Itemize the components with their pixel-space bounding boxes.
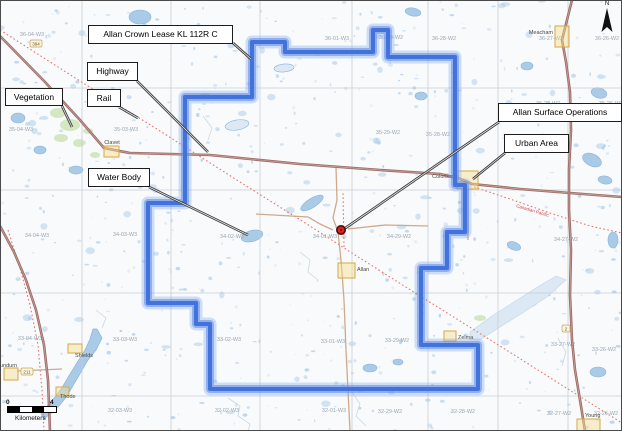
pond-speckle (405, 230, 409, 233)
pond-speckle (387, 253, 392, 256)
pond-speckle (378, 16, 383, 19)
pond-speckle (280, 143, 284, 146)
pond-speckle (520, 336, 525, 339)
pond-speckle (251, 150, 254, 153)
pond-speckle (379, 371, 383, 374)
pond-speckle (60, 352, 62, 355)
soil-speckle (292, 30, 294, 32)
pond-speckle (393, 205, 396, 206)
pond-speckle (205, 115, 210, 117)
pond-speckle (557, 332, 558, 333)
pond-speckle (129, 156, 132, 159)
pond-speckle (377, 67, 383, 73)
pond-speckle (167, 251, 170, 255)
township-grid-label: 32-03-W3 (108, 408, 132, 414)
soil-speckle (546, 177, 548, 179)
soil-speckle (576, 36, 579, 39)
highway-shield-number: 211 (23, 370, 31, 375)
pond-speckle (332, 61, 337, 65)
pond-speckle (255, 170, 258, 172)
township-grid-label: 34-27-W2 (554, 237, 578, 243)
soil-speckle (355, 425, 356, 426)
pond-speckle (567, 403, 571, 405)
township-grid-label: 32-28-W2 (451, 409, 475, 415)
pond-speckle (476, 99, 479, 101)
pond-speckle (442, 8, 445, 11)
pond-speckle (56, 376, 60, 379)
pond-speckle (249, 145, 252, 147)
urban-area-polygon (338, 263, 355, 278)
urban-area-polygon (4, 368, 18, 380)
pond-speckle (128, 383, 132, 386)
soil-speckle (5, 317, 8, 320)
soil-speckle (131, 202, 133, 204)
pond-speckle (274, 21, 277, 23)
lake (34, 146, 46, 154)
pond-speckle (106, 311, 110, 312)
pond-speckle (14, 61, 19, 64)
pond-speckle (610, 421, 615, 424)
pond-speckle (230, 322, 232, 324)
pond-speckle (537, 410, 541, 412)
pond-speckle (298, 231, 302, 232)
pond-speckle (151, 111, 154, 113)
pond-speckle (274, 407, 277, 408)
north-arrow-icon (599, 7, 615, 33)
soil-speckle (22, 21, 24, 23)
soil-speckle (314, 80, 317, 83)
pond-speckle (52, 195, 54, 197)
soil-speckle (306, 409, 307, 410)
soil-speckle (1, 201, 4, 204)
soil-speckle (62, 299, 64, 301)
pond-speckle (253, 341, 257, 342)
pond-speckle (455, 4, 459, 8)
soil-speckle (240, 378, 242, 380)
pond-speckle (25, 272, 29, 275)
pond-speckle (473, 58, 475, 60)
pond-speckle (305, 368, 310, 371)
soil-speckle (295, 354, 296, 355)
soil-speckle (372, 192, 375, 195)
soil-speckle (472, 107, 475, 110)
soil-speckle (370, 138, 373, 141)
soil-speckle (199, 288, 201, 290)
pond-speckle (486, 241, 488, 243)
pond-speckle (609, 204, 611, 207)
pond-speckle (280, 81, 283, 83)
pond-speckle (40, 223, 47, 229)
pond-speckle (378, 172, 386, 176)
pond-speckle (544, 352, 545, 353)
pond-speckle (162, 349, 166, 351)
pond-speckle (141, 374, 146, 376)
pond-speckle (311, 350, 315, 352)
town-label: Allan (357, 267, 369, 273)
callout-water-body: Water Body (88, 168, 150, 187)
pond-speckle (559, 225, 563, 228)
pond-speckle (400, 74, 403, 75)
soil-speckle (611, 330, 613, 332)
pond-speckle (106, 14, 111, 15)
vegetation-patch (474, 315, 486, 321)
pond-speckle (579, 97, 581, 98)
pond-speckle (179, 289, 183, 291)
pond-speckle (317, 280, 319, 282)
pond-speckle (8, 344, 12, 347)
pond-speckle (286, 207, 295, 214)
pond-speckle (323, 204, 331, 207)
pond-speckle (545, 206, 549, 208)
soil-speckle (310, 295, 312, 297)
pond-speckle (393, 318, 396, 320)
scale-bar: 0 4 Kilometers (5, 399, 75, 422)
pond-speckle (12, 169, 14, 171)
pond-speckle (32, 390, 36, 392)
soil-speckle (292, 106, 295, 109)
pond-speckle (171, 287, 174, 289)
soil-speckle (89, 237, 92, 240)
township-grid-label: 35-04-W3 (9, 127, 33, 133)
pond-speckle (40, 116, 49, 120)
pond-speckle (225, 83, 227, 86)
pond-speckle (45, 35, 47, 39)
pond-speckle (487, 28, 492, 30)
pond-speckle (608, 145, 611, 147)
pond-speckle (235, 362, 239, 364)
soil-speckle (535, 156, 537, 158)
pond-speckle (368, 334, 371, 337)
pond-speckle (275, 241, 279, 243)
soil-speckle (72, 25, 73, 26)
pond-speckle (180, 251, 182, 253)
pond-speckle (520, 194, 525, 197)
pond-speckle (321, 401, 330, 407)
soil-speckle (391, 286, 394, 289)
town-label: Young (585, 413, 600, 419)
pond-speckle (332, 18, 337, 19)
pond-speckle (276, 74, 280, 78)
pond-speckle (490, 352, 492, 354)
pond-speckle (104, 425, 107, 427)
pond-speckle (189, 220, 192, 222)
pond-speckle (133, 266, 135, 269)
pond-speckle (571, 74, 576, 78)
pond-speckle (198, 108, 201, 110)
pond-speckle (177, 211, 180, 212)
pond-speckle (473, 208, 480, 213)
pond-speckle (107, 351, 111, 355)
pond-speckle (301, 334, 303, 336)
soil-speckle (473, 282, 476, 285)
pond-speckle (27, 147, 32, 150)
pond-speckle (398, 80, 400, 82)
soil-speckle (267, 374, 270, 377)
soil-speckle (462, 23, 463, 24)
soil-speckle (282, 77, 285, 80)
pond-speckle (68, 424, 73, 427)
pond-speckle (85, 264, 90, 266)
pond-speckle (107, 162, 110, 164)
pond-speckle (230, 197, 232, 200)
pond-speckle (234, 423, 236, 425)
soil-speckle (514, 360, 517, 363)
soil-speckle (384, 347, 386, 349)
north-arrow: N (597, 1, 617, 35)
pond-speckle (322, 257, 327, 260)
pond-speckle (123, 250, 125, 252)
pond-speckle (599, 55, 601, 57)
pond-speckle (455, 263, 459, 266)
pond-speckle (297, 419, 301, 420)
pond-speckle (370, 229, 375, 233)
pond-speckle (337, 315, 340, 318)
soil-speckle (434, 95, 436, 97)
soil-speckle (485, 295, 488, 298)
pond-speckle (588, 307, 590, 309)
pond-speckle (431, 370, 436, 374)
pond-speckle (616, 345, 621, 348)
township-grid-label: 32-02-W3 (215, 408, 239, 414)
pond-speckle (484, 375, 488, 378)
pond-speckle (351, 372, 354, 374)
soil-speckle (291, 324, 292, 325)
soil-speckle (127, 270, 130, 273)
pond-speckle (367, 151, 370, 154)
pond-speckle (385, 278, 389, 282)
lake (129, 10, 151, 24)
soil-speckle (280, 248, 281, 249)
pond-speckle (172, 229, 174, 231)
pond-speckle (106, 343, 109, 346)
pond-speckle (161, 345, 171, 349)
pond-speckle (574, 389, 576, 392)
pond-speckle (52, 31, 56, 34)
pond-speckle (285, 127, 287, 129)
pond-speckle (516, 67, 518, 70)
pond-speckle (208, 277, 212, 281)
vegetation-patch (54, 134, 68, 142)
pond-speckle (537, 123, 539, 126)
soil-speckle (487, 228, 488, 229)
pond-speckle (410, 403, 413, 406)
pond-speckle (511, 98, 513, 100)
pond-speckle (144, 349, 149, 352)
pond-speckle (313, 97, 315, 100)
pond-speckle (47, 34, 50, 38)
mine-marker-center (340, 229, 342, 231)
pond-speckle (614, 317, 619, 321)
pond-speckle (403, 277, 408, 280)
urban-area-polygon (577, 419, 600, 431)
urban-area-polygon (555, 26, 569, 47)
soil-speckle (581, 294, 583, 296)
pond-speckle (577, 354, 580, 356)
pond-speckle (239, 324, 241, 327)
pond-speckle (16, 277, 21, 281)
pond-speckle (127, 95, 132, 99)
township-grid-label: 32-27-W2 (547, 411, 571, 417)
soil-speckle (323, 354, 324, 355)
pond-speckle (214, 56, 218, 59)
town-label: Dundurn (0, 363, 17, 369)
soil-speckle (324, 321, 325, 322)
pond-speckle (202, 7, 204, 10)
pond-speckle (200, 159, 203, 162)
pond-speckle (65, 22, 68, 24)
pond-speckle (334, 91, 336, 92)
soil-speckle (582, 269, 584, 271)
pond-speckle (294, 112, 296, 115)
pond-speckle (36, 391, 39, 393)
pond-speckle (574, 143, 579, 147)
vegetation-patch (90, 152, 100, 158)
lake (393, 359, 403, 365)
highway-shield-number: 394 (32, 42, 40, 47)
callout-allan-crown-lease: Allan Crown Lease KL 112R C (88, 25, 233, 44)
soil-speckle (36, 112, 39, 115)
soil-speckle (268, 234, 270, 236)
soil-speckle (77, 135, 78, 136)
pond-speckle (179, 348, 182, 349)
soil-speckle (32, 252, 34, 254)
pond-speckle (199, 402, 204, 404)
soil-speckle (97, 421, 100, 424)
pond-speckle (238, 163, 243, 168)
township-grid-label: 35-29-W2 (376, 130, 400, 136)
pond-speckle (474, 194, 476, 196)
soil-speckle (465, 284, 468, 287)
township-grid-label: 35-03-W3 (114, 127, 138, 133)
pond-speckle (606, 152, 609, 155)
pond-speckle (146, 126, 148, 128)
pond-speckle (94, 14, 96, 16)
pond-speckle (347, 360, 352, 363)
pond-speckle (302, 142, 305, 145)
pond-speckle (460, 259, 464, 260)
soil-speckle (83, 283, 85, 285)
pond-speckle (599, 250, 604, 252)
pond-speckle (562, 255, 565, 257)
pond-speckle (254, 125, 258, 127)
pond-speckle (166, 239, 169, 242)
pond-speckle (601, 206, 605, 210)
callout-vegetation: Vegetation (5, 88, 63, 106)
pond-speckle (408, 92, 412, 95)
pond-speckle (329, 151, 333, 152)
pond-speckle (13, 294, 16, 296)
pond-speckle (25, 197, 29, 199)
pond-speckle (12, 77, 20, 81)
pond-speckle (443, 208, 447, 210)
soil-speckle (275, 201, 277, 203)
pond-speckle (329, 325, 332, 326)
pond-speckle (151, 172, 155, 176)
soil-speckle (146, 139, 148, 141)
soil-speckle (212, 279, 213, 280)
pond-speckle (382, 165, 384, 168)
pond-speckle (243, 252, 245, 256)
pond-speckle (287, 171, 292, 174)
pond-speckle (511, 158, 514, 160)
soil-speckle (105, 241, 107, 243)
pond-speckle (219, 261, 223, 265)
pond-speckle (42, 71, 47, 73)
pond-speckle (42, 326, 48, 332)
pond-speckle (389, 268, 392, 272)
soil-speckle (52, 13, 54, 15)
pond-speckle (314, 419, 315, 422)
pond-speckle (375, 138, 381, 145)
scale-end-label: 4 (50, 399, 54, 406)
pond-speckle (237, 267, 240, 268)
pond-speckle (3, 213, 7, 215)
town-label: Meacham (529, 30, 554, 36)
pond-speckle (97, 195, 99, 198)
pond-speckle (433, 335, 435, 337)
pond-speckle (330, 83, 332, 87)
pond-speckle (196, 113, 199, 117)
pond-speckle (74, 317, 84, 322)
pond-speckle (125, 360, 129, 362)
pond-speckle (17, 348, 22, 351)
soil-speckle (264, 142, 266, 144)
pond-speckle (43, 210, 45, 213)
pond-speckle (105, 202, 108, 203)
pond-speckle (473, 237, 476, 241)
soil-speckle (358, 88, 360, 90)
pond-speckle (147, 156, 150, 158)
callout-urban-area: Urban Area (504, 134, 569, 153)
callout-rail: Rail (87, 89, 121, 107)
pond-speckle (56, 11, 60, 15)
soil-speckle (375, 210, 376, 211)
map-figure: 36-04-W336-01-W336-29-W236-28-W236-27-W2… (0, 0, 622, 431)
pond-speckle (162, 176, 164, 179)
pond-speckle (191, 62, 194, 66)
pond-speckle (336, 257, 340, 260)
pond-speckle (341, 309, 344, 310)
pond-speckle (570, 166, 574, 169)
soil-speckle (92, 406, 93, 407)
pond-speckle (335, 133, 341, 137)
township-grid-label: 36-01-W3 (325, 36, 349, 42)
soil-speckle (269, 248, 271, 250)
pond-speckle (155, 18, 159, 20)
soil-speckle (161, 309, 163, 311)
pond-speckle (28, 179, 31, 182)
pond-speckle (59, 157, 61, 159)
pond-speckle (215, 127, 219, 131)
pond-speckle (95, 161, 99, 162)
township-grid-label: 33-04-W3 (18, 336, 42, 342)
pond-speckle (294, 377, 299, 382)
soil-speckle (298, 262, 301, 265)
soil-speckle (538, 225, 541, 228)
soil-speckle (473, 191, 475, 193)
soil-speckle (176, 358, 178, 360)
pond-speckle (597, 74, 605, 79)
pond-speckle (596, 143, 606, 149)
pond-speckle (295, 64, 297, 67)
pond-speckle (86, 247, 95, 254)
pond-speckle (202, 103, 206, 104)
pond-speckle (28, 120, 36, 127)
pond-speckle (545, 344, 548, 347)
pond-speckle (247, 170, 250, 173)
township-grid-label: 34-03-W3 (113, 232, 137, 238)
pond-speckle (498, 3, 506, 8)
